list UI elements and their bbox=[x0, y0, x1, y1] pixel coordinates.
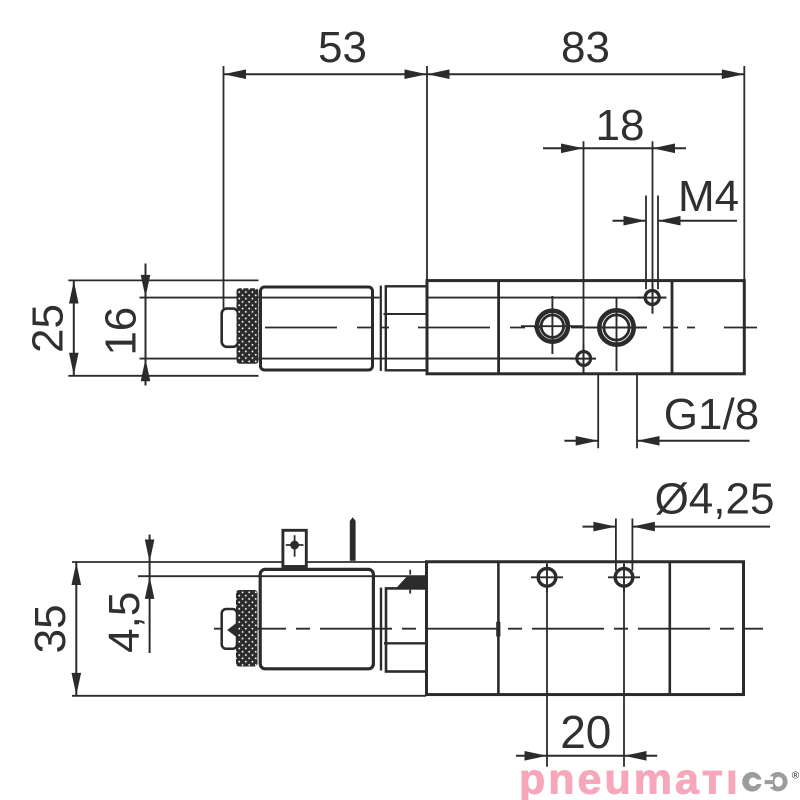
svg-text:Ø4,25: Ø4,25 bbox=[655, 475, 775, 524]
svg-text:20: 20 bbox=[560, 706, 611, 758]
svg-text:25: 25 bbox=[23, 304, 72, 353]
svg-text:35: 35 bbox=[26, 604, 75, 653]
svg-text:4,5: 4,5 bbox=[100, 592, 149, 653]
svg-text:16: 16 bbox=[97, 307, 146, 356]
svg-text:G1/8: G1/8 bbox=[664, 390, 759, 439]
svg-text:53: 53 bbox=[318, 23, 367, 72]
svg-text:®: ® bbox=[792, 770, 800, 781]
svg-text:pneumaтı: pneumaтı bbox=[519, 756, 741, 800]
svg-text:18: 18 bbox=[596, 101, 645, 150]
svg-text:83: 83 bbox=[561, 23, 610, 72]
svg-text:M4: M4 bbox=[678, 172, 739, 221]
